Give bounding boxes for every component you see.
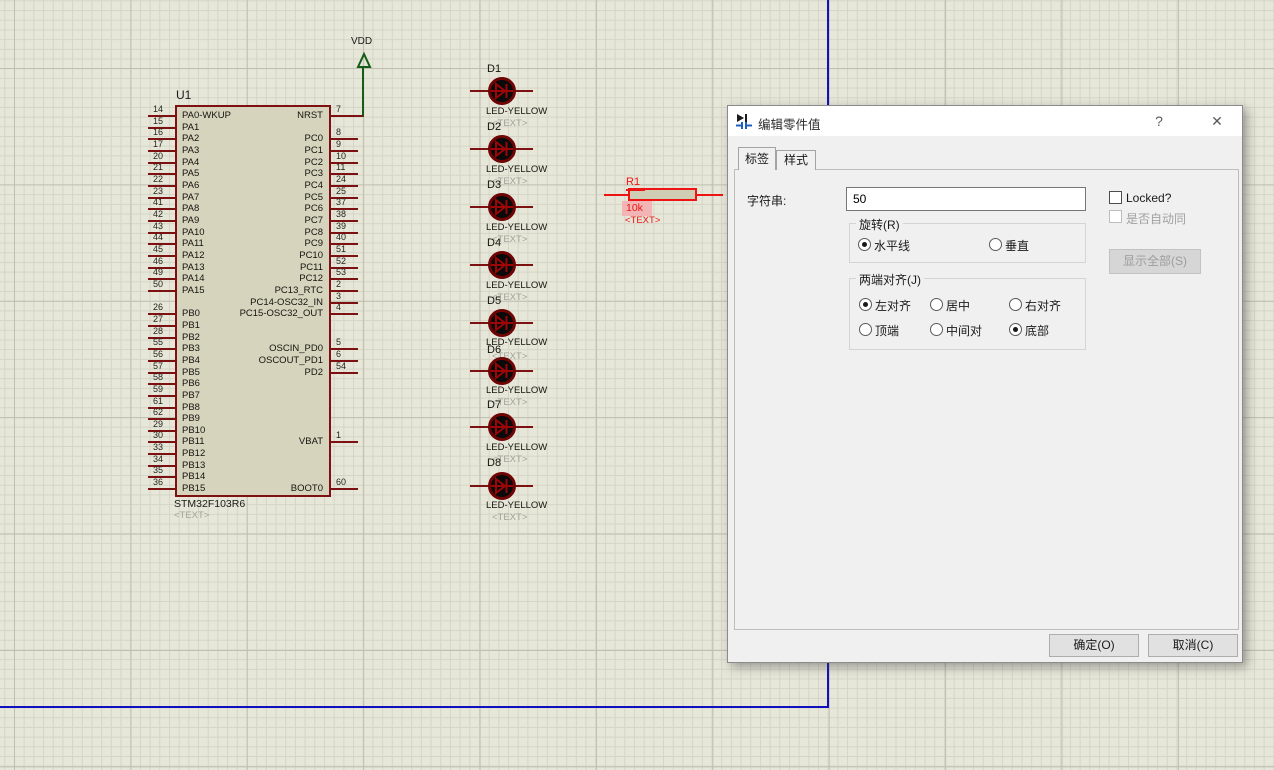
pin-label-PC13_RTC: PC13_RTC (175, 285, 323, 296)
help-button[interactable]: ? (1148, 112, 1170, 130)
show-all-button: 显示全部(S) (1109, 249, 1201, 274)
pin-label-PB6: PB6 (182, 378, 200, 389)
led-type-D8: LED-YELLOW (486, 500, 547, 511)
justify-label-左对齐: 左对齐 (875, 297, 911, 314)
pin-label-OSCIN_PD0: OSCIN_PD0 (175, 343, 323, 354)
pin-number-PA9: 42 (153, 209, 163, 219)
led-type-D3: LED-YELLOW (486, 222, 547, 233)
pin-number-PB9: 62 (153, 407, 163, 417)
justify-radio-中间对[interactable] (930, 323, 943, 336)
pin-number-PC0: 8 (336, 127, 341, 137)
pin-label-PC3: PC3 (175, 168, 323, 179)
rotation-label-垂直: 垂直 (1005, 237, 1029, 254)
rotation-radio-水平线[interactable] (858, 238, 871, 251)
pin-number-PB6: 58 (153, 372, 163, 382)
pin-label-PC6: PC6 (175, 203, 323, 214)
close-button[interactable]: ✕ (1206, 112, 1228, 130)
pin-label-PC11: PC11 (175, 262, 323, 273)
pin-number-PB12: 33 (153, 442, 163, 452)
justify-label-顶端: 顶端 (875, 322, 899, 339)
pin-label-PB12: PB12 (182, 448, 205, 459)
cancel-button[interactable]: 取消(C) (1148, 634, 1238, 657)
component-u1-text-placeholder: <TEXT> (174, 510, 209, 521)
pin-number-PC5: 25 (336, 186, 346, 196)
pin-number-PC14-OSC32_IN: 3 (336, 291, 341, 301)
pin-number-PB1: 27 (153, 314, 163, 324)
rotation-group-title: 旋转(R) (856, 216, 903, 233)
led-ref-D6: D6 (487, 344, 501, 356)
pin-number-PA14: 49 (153, 267, 163, 277)
pin-number-PD2: 54 (336, 361, 346, 371)
pin-number-PA13: 46 (153, 256, 163, 266)
pin-PD2[interactable] (331, 372, 358, 374)
pin-number-PC9: 40 (336, 232, 346, 242)
pin-number-PC1: 9 (336, 139, 341, 149)
justify-radio-左对齐[interactable] (859, 298, 872, 311)
led-text-placeholder-D8: <TEXT> (492, 512, 527, 523)
led-ref-D2: D2 (487, 121, 501, 133)
pin-number-NRST: 7 (336, 104, 341, 114)
led-ref-D4: D4 (487, 237, 501, 249)
justify-radio-顶端[interactable] (859, 323, 872, 336)
pin-number-OSCIN_PD0: 5 (336, 337, 341, 347)
power-arrow-icon[interactable] (355, 51, 373, 69)
justify-label-中间对: 中间对 (946, 322, 982, 339)
pin-label-PB7: PB7 (182, 390, 200, 401)
resistor-text-placeholder: <TEXT> (625, 215, 660, 226)
pin-number-PC10: 51 (336, 244, 346, 254)
pin-PC15-OSC32_OUT[interactable] (331, 313, 358, 315)
pin-number-PB5: 57 (153, 361, 163, 371)
sheet-border-bottom (0, 706, 829, 708)
pin-label-OSCOUT_PD1: OSCOUT_PD1 (175, 355, 323, 366)
led-type-D7: LED-YELLOW (486, 442, 547, 453)
locked-checkbox-label: Locked? (1126, 191, 1171, 205)
led-type-D1: LED-YELLOW (486, 106, 547, 117)
locked-checkbox[interactable] (1109, 191, 1122, 204)
edit-part-value-dialog: 编辑零件值 ? ✕ 标签样式 字符串: Locked? 是否自动同 显示全部(S… (727, 105, 1243, 663)
pin-label-PB14: PB14 (182, 471, 205, 482)
justify-radio-居中[interactable] (930, 298, 943, 311)
tab-样式[interactable]: 样式 (776, 150, 816, 170)
led-ref-D5: D5 (487, 295, 501, 307)
pin-PB15[interactable] (148, 488, 175, 490)
auto-sync-checkbox-label: 是否自动同 (1126, 210, 1186, 227)
pin-number-PA4: 20 (153, 151, 163, 161)
pin-number-PB4: 56 (153, 349, 163, 359)
string-value-input[interactable] (846, 187, 1086, 211)
pin-number-PA12: 45 (153, 244, 163, 254)
pin-label-PC8: PC8 (175, 227, 323, 238)
pin-label-VBAT: VBAT (175, 436, 323, 447)
pin-number-PB0: 26 (153, 302, 163, 312)
pin-label-PC0: PC0 (175, 133, 323, 144)
vdd-wire-vertical[interactable] (362, 67, 364, 117)
pin-number-PC15-OSC32_OUT: 4 (336, 302, 341, 312)
pin-number-PC2: 10 (336, 151, 346, 161)
pin-VBAT[interactable] (331, 441, 358, 443)
led-symbol-D6[interactable] (488, 357, 516, 385)
rotation-label-水平线: 水平线 (874, 237, 910, 254)
pin-number-BOOT0: 60 (336, 477, 346, 487)
pin-number-PA10: 43 (153, 221, 163, 231)
pin-number-PC11: 52 (336, 256, 346, 266)
ok-button[interactable]: 确定(O) (1049, 634, 1139, 657)
auto-sync-checkbox (1109, 210, 1122, 223)
pin-PA15[interactable] (148, 290, 175, 292)
pin-number-PB14: 35 (153, 465, 163, 475)
pin-label-PC12: PC12 (175, 273, 323, 284)
justify-radio-右对齐[interactable] (1009, 298, 1022, 311)
justify-label-居中: 居中 (946, 297, 970, 314)
dialog-title: 编辑零件值 (758, 114, 821, 133)
led-ref-D8: D8 (487, 457, 501, 469)
led-symbol-D5[interactable] (488, 309, 516, 337)
led-ref-D3: D3 (487, 179, 501, 191)
pin-label-PB1: PB1 (182, 320, 200, 331)
pin-number-PA1: 15 (153, 116, 163, 126)
led-symbol-D3[interactable] (488, 193, 516, 221)
pin-label-PB9: PB9 (182, 413, 200, 424)
pin-label-PC9: PC9 (175, 238, 323, 249)
pin-label-PC15-OSC32_OUT: PC15-OSC32_OUT (175, 308, 323, 319)
rotation-radio-垂直[interactable] (989, 238, 1002, 251)
pin-label-PC5: PC5 (175, 192, 323, 203)
led-symbol-D2[interactable] (488, 135, 516, 163)
pin-number-PA8: 41 (153, 197, 163, 207)
pin-label-PB2: PB2 (182, 332, 200, 343)
pin-label-NRST: NRST (175, 110, 323, 121)
pin-label-PB10: PB10 (182, 425, 205, 436)
pin-number-PC3: 11 (336, 162, 345, 172)
edit-component-icon (736, 113, 752, 129)
led-ref-D7: D7 (487, 399, 501, 411)
led-symbol-D4[interactable] (488, 251, 516, 279)
pin-label-BOOT0: BOOT0 (175, 483, 323, 494)
pin-number-OSCOUT_PD1: 6 (336, 349, 341, 359)
component-u1-ref: U1 (176, 88, 191, 102)
pin-number-PB7: 59 (153, 384, 163, 394)
rotation-group: 旋转(R) 水平线垂直 (849, 223, 1086, 263)
resistor-ref: R1 (626, 176, 640, 188)
justify-label-底部: 底部 (1025, 322, 1049, 339)
pin-number-PA0-WKUP: 14 (153, 104, 163, 114)
pin-label-PC10: PC10 (175, 250, 323, 261)
pin-number-PC13_RTC: 2 (336, 279, 341, 289)
pin-number-PC8: 39 (336, 221, 346, 231)
pin-number-PB3: 55 (153, 337, 163, 347)
string-field-label: 字符串: (747, 192, 786, 209)
pin-label-PC14-OSC32_IN: PC14-OSC32_IN (175, 297, 323, 308)
pin-number-PB2: 28 (153, 326, 163, 336)
pin-number-VBAT: 1 (336, 430, 341, 440)
pin-number-PC4: 24 (336, 174, 346, 184)
justify-group: 两端对齐(J) 左对齐居中右对齐顶端中间对底部 (849, 278, 1086, 350)
pin-number-PA3: 17 (153, 139, 163, 149)
led-type-D2: LED-YELLOW (486, 164, 547, 175)
pin-number-PA7: 23 (153, 186, 163, 196)
led-symbol-D7[interactable] (488, 413, 516, 441)
justify-group-title: 两端对齐(J) (856, 271, 924, 288)
pin-label-PB8: PB8 (182, 402, 200, 413)
pin-label-PC4: PC4 (175, 180, 323, 191)
pin-label-PC7: PC7 (175, 215, 323, 226)
pin-number-PB15: 36 (153, 477, 163, 487)
pin-number-PA15: 50 (153, 279, 163, 289)
pin-label-PB13: PB13 (182, 460, 205, 471)
pin-label-PD2: PD2 (175, 367, 323, 378)
pin-number-PC12: 53 (336, 267, 346, 277)
pin-number-PB10: 29 (153, 419, 163, 429)
vdd-label: VDD (351, 36, 372, 47)
pin-BOOT0[interactable] (331, 488, 358, 490)
pin-number-PA6: 22 (153, 174, 163, 184)
resistor-value[interactable]: 10k (626, 202, 643, 214)
pin-NRST[interactable] (331, 115, 363, 117)
component-u1-part: STM32F103R6 (174, 498, 245, 510)
led-symbol-D1[interactable] (488, 77, 516, 105)
led-symbol-D8[interactable] (488, 472, 516, 500)
pin-number-PA5: 21 (153, 162, 163, 172)
led-type-D4: LED-YELLOW (486, 280, 547, 291)
led-type-D6: LED-YELLOW (486, 385, 547, 396)
dialog-titlebar[interactable]: 编辑零件值 ? ✕ (728, 106, 1242, 136)
pin-number-PB11: 30 (153, 430, 163, 440)
pin-number-PB13: 34 (153, 454, 163, 464)
pin-number-PC6: 37 (336, 197, 346, 207)
justify-radio-底部[interactable] (1009, 323, 1022, 336)
led-ref-D1: D1 (487, 63, 501, 75)
pin-number-PB8: 61 (153, 396, 163, 406)
pin-number-PA2: 16 (153, 127, 163, 137)
pin-label-PC2: PC2 (175, 157, 323, 168)
pin-label-PC1: PC1 (175, 145, 323, 156)
pin-number-PC7: 38 (336, 209, 346, 219)
justify-label-右对齐: 右对齐 (1025, 297, 1061, 314)
pin-label-PA1: PA1 (182, 122, 199, 133)
proteus-window: VDD U1 STM32F103R6 <TEXT> 14PA0-WKUP15PA… (0, 0, 1274, 770)
tab-标签[interactable]: 标签 (738, 147, 776, 170)
resistor-ref-underline (626, 189, 645, 191)
pin-number-PA11: 44 (153, 232, 163, 242)
